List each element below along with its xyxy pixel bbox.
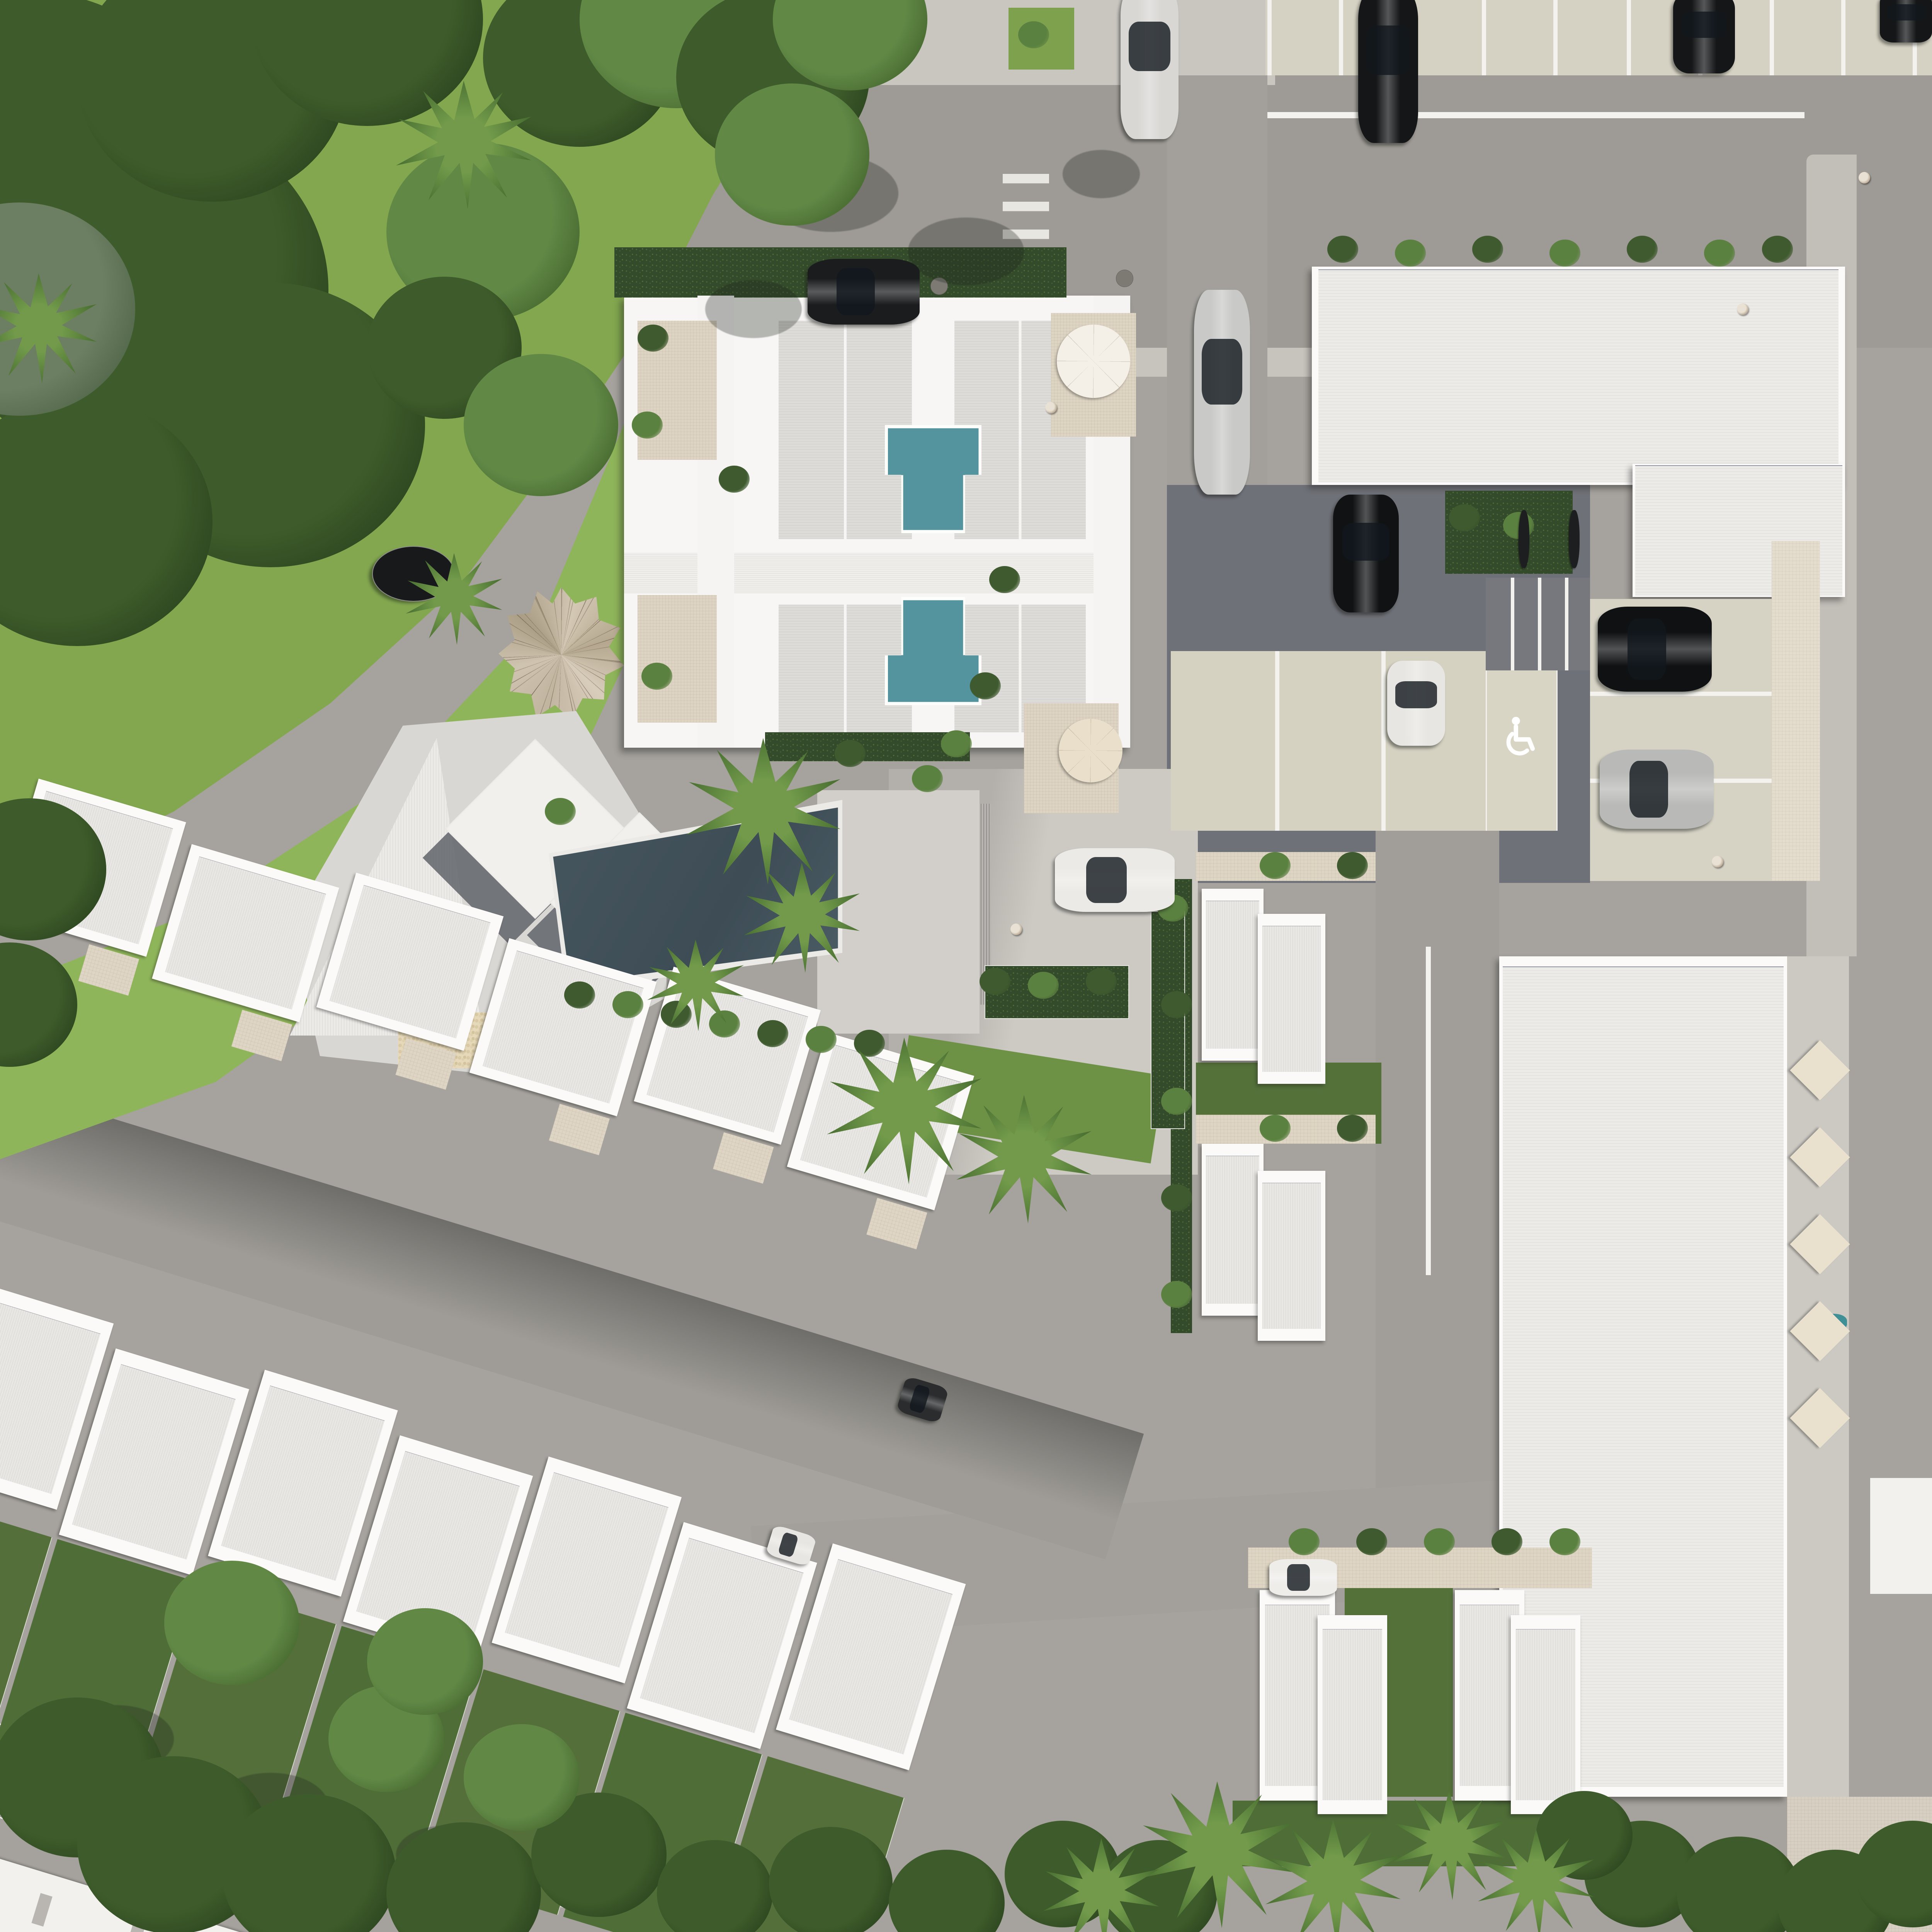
motorcycle	[1519, 510, 1529, 568]
bush	[1337, 852, 1368, 879]
person	[1859, 172, 1870, 184]
stall-car-dark-2-glass	[1682, 12, 1726, 37]
bush	[806, 1026, 837, 1053]
mid-vertical-road	[1376, 831, 1499, 1594]
villa-roof-2-rib	[1323, 1629, 1383, 1800]
stall-line	[1381, 651, 1386, 831]
row-upper-unit-rib	[329, 885, 490, 1038]
bush	[912, 765, 943, 792]
roof-vent	[31, 1893, 52, 1927]
bush	[1549, 240, 1580, 267]
bush	[1161, 1281, 1192, 1308]
bush	[1018, 21, 1049, 48]
bush	[719, 466, 750, 493]
row-lower-unit-rib	[221, 1386, 384, 1581]
bush	[1356, 1528, 1387, 1555]
bush	[1289, 1528, 1320, 1555]
bush	[1627, 236, 1658, 263]
stall-line	[1339, 0, 1343, 75]
tree-canopy	[464, 354, 618, 496]
duplex-roof-1	[1202, 889, 1264, 1061]
pool-south-water	[888, 600, 979, 702]
row-upper-unit	[152, 844, 340, 1022]
bush	[1086, 968, 1117, 995]
lot-car-black	[1333, 495, 1399, 612]
villa-roof-4-rib	[1516, 1629, 1576, 1800]
row-upper-unit	[469, 938, 657, 1116]
row-lower-unit-rib	[789, 1559, 952, 1754]
row-lower-unit-rib	[505, 1472, 668, 1667]
corner-roof-sliver	[1870, 1478, 1932, 1594]
bush	[632, 412, 663, 439]
bush	[1028, 972, 1059, 999]
bush	[1492, 1528, 1522, 1555]
stall-car-silver-glass	[1129, 22, 1170, 71]
street-car-silver-glass	[1202, 339, 1242, 405]
duplex-roof-3-rib	[1206, 1156, 1259, 1304]
bush	[835, 740, 866, 767]
lot-suv-black-glass	[1628, 619, 1666, 680]
bush	[970, 672, 1001, 699]
bush	[1260, 1115, 1291, 1142]
handicap-stall-icon	[1499, 705, 1544, 766]
handicap-stall	[1486, 651, 1558, 831]
lot-car-black-glass	[1342, 523, 1389, 561]
tree-shadow	[1063, 150, 1140, 198]
bush	[564, 981, 595, 1009]
lot-car-white-glass	[1395, 681, 1437, 708]
bush	[1395, 240, 1426, 267]
tree-canopy	[367, 1608, 483, 1715]
stall-car-dark-3	[1880, 0, 1932, 43]
pool-north-water	[888, 428, 979, 530]
bush	[854, 1030, 885, 1057]
tree-canopy	[715, 83, 869, 226]
bush	[1449, 504, 1480, 531]
stage	[0, 0, 1932, 1932]
bush	[1424, 1528, 1455, 1555]
person	[1737, 303, 1748, 315]
duplex-roof-2	[1258, 914, 1325, 1084]
lot-suv-black	[1598, 607, 1712, 692]
row-upper-unit-rib	[165, 856, 327, 1009]
drive-car-dark-glass	[908, 1384, 930, 1414]
bush	[989, 566, 1020, 593]
bush	[612, 991, 643, 1018]
duplex-roof-3	[1202, 1144, 1264, 1316]
bush	[638, 325, 668, 352]
bush	[545, 798, 576, 825]
bush	[1472, 236, 1503, 263]
terrace-sw	[638, 595, 717, 723]
stall-car-dark-1-glass	[1367, 26, 1410, 75]
moto-stall-line	[1511, 578, 1514, 670]
bush	[1337, 1115, 1368, 1142]
person	[1010, 923, 1022, 935]
courtyard-south-hedge	[765, 732, 970, 761]
bush	[941, 730, 972, 757]
bush	[1260, 852, 1291, 879]
l-building-main	[1312, 267, 1845, 485]
court-car-white	[1055, 848, 1175, 912]
duplex-roof-2-rib	[1262, 926, 1321, 1072]
stall-car-dark-3-glass	[1887, 4, 1925, 20]
l-building-main-roof	[1318, 269, 1839, 482]
lot-suv-silver-glass	[1629, 761, 1668, 818]
duplex-roof-4-rib	[1262, 1183, 1321, 1329]
bush	[1161, 1184, 1192, 1211]
stall-line	[1770, 0, 1774, 75]
bush	[1161, 991, 1192, 1018]
bush	[980, 968, 1010, 995]
mid-road-line	[1426, 947, 1431, 1275]
bush	[641, 663, 672, 690]
bush	[1161, 1088, 1192, 1115]
villa-roof-2	[1318, 1615, 1387, 1814]
road-car-black	[808, 259, 920, 325]
stall-car-dark-1	[1358, 0, 1418, 143]
cluster-van-white	[1269, 1559, 1337, 1596]
lot-suv-silver	[1600, 750, 1714, 829]
manhole-cover	[1116, 270, 1133, 287]
tree-canopy	[164, 1561, 299, 1685]
tree-shadow	[908, 218, 1024, 285]
court-car-white-glass	[1086, 857, 1127, 903]
stall-line	[1841, 0, 1845, 75]
stall-line	[1590, 692, 1772, 696]
umbrella-se	[1059, 719, 1122, 782]
person	[1712, 856, 1723, 867]
umbrella-ne	[1057, 325, 1130, 398]
tree-shadow	[705, 280, 802, 338]
tree-canopy	[464, 1724, 580, 1831]
stall-line	[1482, 0, 1486, 75]
top-road-median-line	[1267, 112, 1804, 118]
stall-line	[1267, 0, 1272, 75]
bush	[1704, 240, 1735, 267]
stall-line	[1275, 651, 1279, 831]
east-stall-sidewalk	[1772, 541, 1820, 881]
moto-stall-line	[1538, 578, 1541, 670]
bush	[1327, 236, 1358, 263]
drive-car-white-glass	[778, 1532, 799, 1558]
row-upper-unit-rib	[483, 951, 644, 1104]
stall-car-dark-2	[1673, 0, 1735, 73]
person	[1045, 402, 1057, 413]
bush	[1549, 1528, 1580, 1555]
moto-stall-line	[1565, 578, 1568, 670]
street-car-silver	[1194, 290, 1250, 495]
duplex-roof-4	[1258, 1171, 1325, 1341]
stall-line	[1553, 0, 1558, 75]
bush	[757, 1020, 788, 1047]
tree-canopy	[889, 1850, 1005, 1932]
row-lower-unit-rib	[72, 1364, 236, 1560]
bush	[1762, 236, 1793, 263]
bush	[709, 1010, 740, 1037]
cluster-van-white-glass	[1287, 1564, 1310, 1590]
stall-car-silver	[1121, 0, 1179, 139]
row-lower-unit-rib	[640, 1538, 804, 1733]
villa-roof-4	[1511, 1615, 1580, 1814]
road-car-black-glass	[837, 268, 875, 315]
lot-car-white	[1387, 661, 1445, 746]
motorcycle	[1569, 510, 1580, 568]
stall-line	[1627, 0, 1631, 75]
duplex-roof-1-rib	[1206, 901, 1259, 1049]
